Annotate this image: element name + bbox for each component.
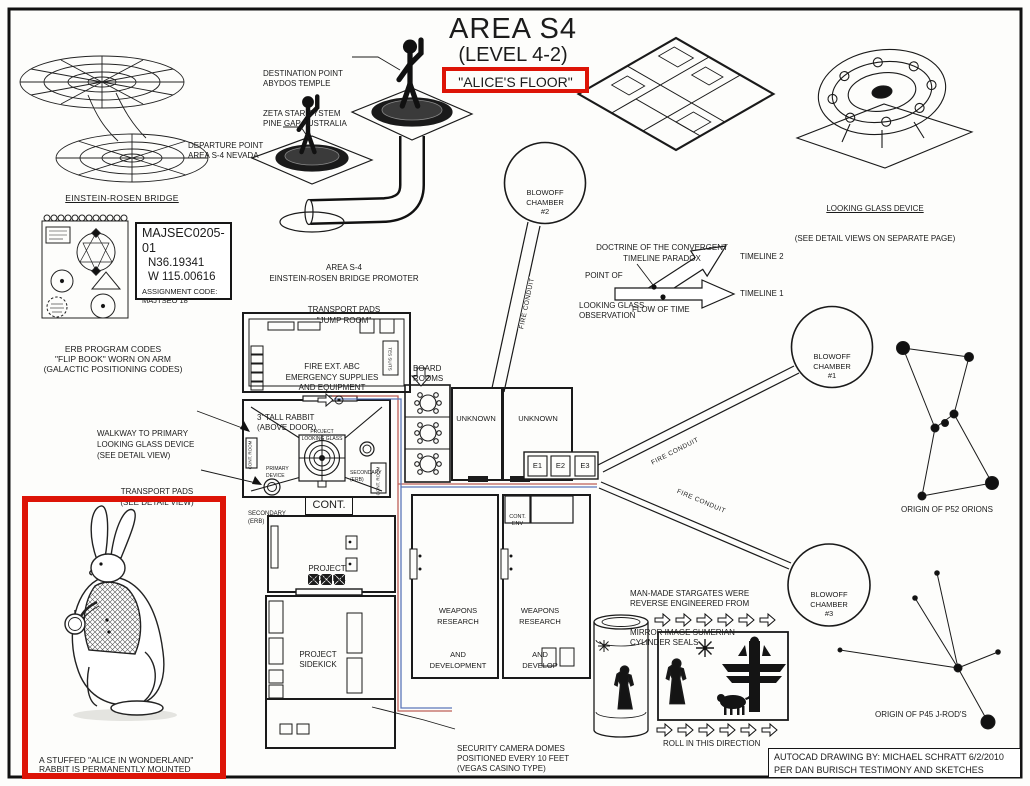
destination-point-label: DESTINATION POINTABYDOS TEMPLE ZETA STAR… xyxy=(263,49,347,139)
blowoff-chamber-3-label: BLOWOFFCHAMBER#3 xyxy=(789,571,869,628)
cont-room-box-label: CONT. xyxy=(305,497,353,515)
majsec-code: MAJSEC0205-01 xyxy=(142,226,230,256)
departure-point-label: DEPARTURE POINTAREA S-4 NEVADA xyxy=(188,121,263,171)
flow-of-time-label: FLOW OF TIME xyxy=(632,305,690,315)
area-s4-diagram-page: AREA S4 (LEVEL 4-2) "ALICE'S FLOOR" EINS… xyxy=(0,0,1030,786)
room-project-sidekick-1-label: PROJECTSIDEKICK xyxy=(287,544,367,594)
room-weapons-1-label: WEAPONSRESEARCH ANDDEVELOPMENT xyxy=(413,583,503,682)
majsec-assignment-code: MAJTSEO 18 xyxy=(142,296,230,305)
security-cameras-note: SECURITY CAMERA DOMESPOSITIONED EVERY 10… xyxy=(457,724,569,784)
roll-direction-label: ROLL IN THIS DIRECTION xyxy=(663,739,760,749)
erb-bridge-caption: EINSTEIN-ROSEN BRIDGE xyxy=(42,193,202,203)
primary-device-label: PRIMARYDEVICE xyxy=(266,454,289,485)
room-unknown-1-label: UNKNOWN xyxy=(446,414,506,424)
timeline-1-label: TIMELINE 1 xyxy=(740,289,784,299)
cont-room-left-label: CONT. ROOM xyxy=(245,441,255,470)
jrod-origin-caption: ORIGIN OF P45 J-ROD'S xyxy=(875,710,967,720)
alices-floor-label: "ALICE'S FLOOR" xyxy=(446,74,585,90)
room-unknown-2-label: UNKNOWN xyxy=(508,414,568,424)
board-rooms-label: BOARDROOMS xyxy=(413,345,443,393)
majsec-assignment-label: ASSIGNMENT CODE: xyxy=(142,287,230,296)
einstein-rosen-bridge-drawing xyxy=(20,56,208,182)
page-subtitle-level: (LEVEL 4-2) xyxy=(413,44,613,67)
alices-floor-highlight-box: "ALICE'S FLOOR" xyxy=(442,67,589,93)
flip-book-drawing xyxy=(42,215,128,318)
room-weapons-2-label: WEAPONSRESEARCH ANDDEVELOP xyxy=(495,583,585,682)
room-project-looking-glass-label: PROJECTLOOKING GLASS xyxy=(292,417,352,448)
stargates-note: MAN-MADE STARGATES WEREREVERSE ENGINEERE… xyxy=(630,570,749,657)
majsec-lat: N36.19341 xyxy=(142,256,230,270)
room-cont-env-label: CONT.ENV xyxy=(504,501,531,534)
room-e1-label: E1 xyxy=(528,461,547,471)
page-title: AREA S4 xyxy=(413,14,613,45)
rabbit-caption: A STUFFED "ALICE IN WONDERLAND"RABBIT IS… xyxy=(39,736,193,786)
majsec-id-box: MAJSEC0205-01 N36.19341 W 115.00616 ASSI… xyxy=(135,222,232,300)
room-e3-label: E3 xyxy=(575,461,595,471)
room-project-sidekick-2-label: PROJECTSIDEKICK xyxy=(278,630,358,680)
point-of-observation-label: POINT OF LOOKING GLASSOBSERVATION xyxy=(579,251,644,331)
secondary-erb-left-label: SECONDARY(ERB) xyxy=(248,496,286,534)
credit-line-1: AUTOCAD DRAWING BY: MICHAEL SCHRATT 6/2/… xyxy=(774,751,1015,764)
credit-box: AUTOCAD DRAWING BY: MICHAEL SCHRATT 6/2/… xyxy=(768,748,1021,778)
jump-room-caption: AREA S-4EINSTEIN-ROSEN BRIDGE PROMOTER T… xyxy=(244,242,444,337)
timeline-2-label: TIMELINE 2 xyxy=(740,252,784,262)
cont-room-right-label: CONT. ROOM xyxy=(373,467,383,496)
walkway-note: WALKWAY TO PRIMARYLOOKING GLASS DEVICE(S… xyxy=(97,406,194,472)
majsec-lon: W 115.00616 xyxy=(142,270,230,284)
looking-glass-caption: LOOKING GLASS DEVICE (SEE DETAIL VIEWS O… xyxy=(775,184,975,254)
orion-origin-caption: ORIGIN OF P52 ORIONS xyxy=(901,505,993,515)
room-e2-label: E2 xyxy=(551,461,570,471)
credit-line-2: PER DAN BURISCH TESTIMONY AND SKETCHES xyxy=(774,764,1015,777)
blowoff-chamber-2-label: BLOWOFFCHAMBER#2 xyxy=(505,169,585,226)
flipbook-caption: ERB PROGRAM CODES"FLIP BOOK" WORN ON ARM… xyxy=(27,324,199,384)
orion-constellation xyxy=(897,342,999,501)
room-tes-suits-label: TES SUITS xyxy=(385,347,395,370)
looking-glass-device-drawing xyxy=(797,42,972,168)
blowoff-chamber-1-label: BLOWOFFCHAMBER#1 xyxy=(792,333,872,390)
